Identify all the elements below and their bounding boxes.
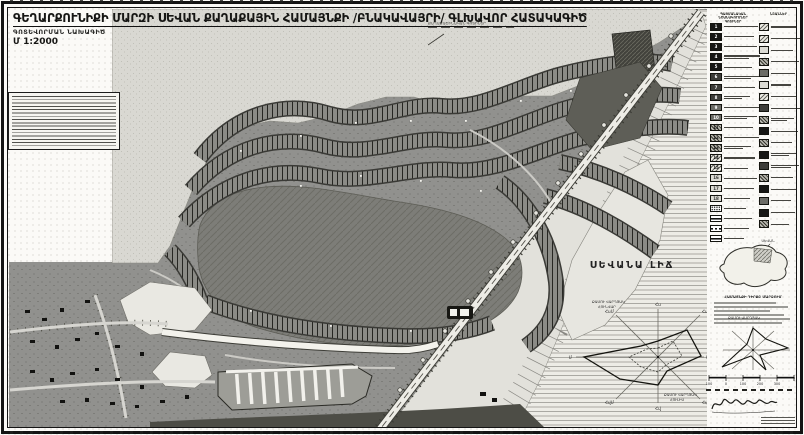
legend-item: [759, 116, 798, 124]
legend-label-lines: [724, 145, 756, 150]
legend-swatch: 2: [710, 33, 722, 41]
legend-item: [759, 93, 798, 101]
signature-scribble: [709, 392, 781, 418]
legend-swatch: [759, 139, 769, 147]
legend-label-lines: [771, 152, 798, 157]
legend-label-lines: [724, 126, 756, 129]
legend-label-lines: [724, 217, 756, 220]
legend-swatch: [759, 197, 769, 205]
legend-item: 8: [710, 94, 756, 102]
legend-item: 7: [710, 84, 756, 92]
callout-leader-line: [428, 28, 468, 46]
legend-swatch: [710, 215, 722, 223]
legend-swatch: 18: [710, 195, 722, 203]
legend-label-lines: [771, 130, 798, 133]
legend-label-lines: [724, 115, 757, 120]
zones-callout-label: ՔԱՂԱՔԱՇԻՆԱԿԱՆ ԳՈՏԻՆԵՐ: [428, 21, 486, 25]
legend-swatch: 5: [710, 63, 722, 71]
legend-label-lines: [724, 25, 758, 28]
legend-label-lines: [724, 187, 756, 190]
rose-axis-sw: ՀվՄ: [605, 400, 615, 405]
legend-swatch: 13: [710, 144, 722, 152]
legend-item: [759, 81, 798, 89]
legend-swatch: [759, 127, 769, 135]
zones-callout: ՔԱՂԱՔԱՇԻՆԱԿԱՆ ԳՈՏԻՆԵՐ: [428, 21, 548, 50]
legend-label-lines: [724, 136, 759, 139]
legend-label-lines: [771, 49, 798, 52]
legend-swatch: 6: [710, 73, 722, 81]
legend-item: 17: [710, 185, 756, 193]
legend-item: 12: [710, 134, 756, 142]
legend-left-heading: ՊԱՅՄԱՆԱԿԱՆ ՆՇԱՆԱԿՈՒՄՆԵՐԳՈՏԻՆԵՐ: [710, 12, 756, 24]
scale-num-4: 300: [774, 382, 780, 386]
legend-item: [759, 35, 798, 43]
legend-item: [759, 209, 798, 217]
legend-label-lines: [724, 35, 756, 38]
legend-swatch: [759, 69, 769, 77]
greenhouse-block: [218, 364, 372, 410]
legend-swatch: [759, 104, 769, 112]
legend-item: 11: [710, 124, 756, 132]
inset-heading: ՀԱՄԱՅՆՔԻ ԴԻՐՔԸ ՄԱՐԶՈՒՄ: [724, 294, 781, 299]
legend-col-right-items: [759, 23, 798, 228]
legend-label-lines: [771, 95, 798, 98]
separator-dashed-line: [706, 389, 797, 391]
notes-block: [8, 92, 120, 150]
legend-item: 2: [710, 33, 756, 41]
legend-swatch: [710, 205, 722, 213]
legend-swatch: [759, 220, 769, 228]
legend-item: [759, 162, 798, 170]
sevan-region-shade: [754, 248, 772, 263]
rose-small-caption: ՔԱՄՈՒ ՎԱՐԴՅԱԿ: [728, 316, 760, 320]
legend-item: 14: [710, 154, 756, 162]
legend-item: [759, 46, 798, 54]
legend-swatch: [759, 209, 769, 217]
legend-swatch: [759, 81, 769, 89]
legend-item: 15: [710, 164, 756, 172]
legend-swatch: 1: [710, 23, 722, 31]
legend-label-lines: [724, 95, 756, 100]
legend-swatch: [759, 151, 769, 159]
legend-swatch: [759, 93, 769, 101]
inset-marker-label: ՍԵՎԱՆ: [762, 239, 775, 243]
rose-axis-n: Հս: [655, 302, 661, 307]
legend-right-heading: ՆՇԱՆՆԵՐ: [759, 12, 798, 16]
legend-label-lines: [771, 72, 798, 75]
legend-label-lines: [771, 199, 798, 202]
legend-swatch: [759, 46, 769, 54]
scale-num-3: 200: [757, 382, 763, 386]
master-plan-sheet: ՍԵՎԱՆԱ ԼԻՃ Հս Հվ Մ Ա ՀսԱ Հս: [0, 0, 804, 435]
legend-label-lines: [724, 86, 756, 89]
legend-item: [710, 215, 756, 223]
road-sign-badge: [447, 306, 473, 319]
legend-swatch: 10: [710, 114, 722, 122]
corner-micro-text: [761, 417, 795, 426]
legend-item: 9: [710, 104, 756, 112]
legend-label-lines: [771, 176, 798, 179]
legend-item: [710, 225, 756, 233]
legend-swatch: 16: [710, 174, 722, 182]
legend-item: 10: [710, 114, 756, 122]
graphic-scale-bar: 100 0 100 200 300: [705, 372, 799, 387]
legend-swatch: [759, 58, 769, 66]
legend-swatch: 9: [710, 104, 722, 112]
wind-rose-small: ՔԱՄՈՒ ՎԱՐԴՅԱԿ: [706, 310, 802, 372]
armenia-outline: [720, 245, 787, 286]
legend-panel: ՊԱՅՄԱՆԱԿԱՆ ՆՇԱՆԱԿՈՒՄՆԵՐԳՈՏԻՆԵՐ 123456789…: [710, 12, 798, 238]
legend-swatch: 7: [710, 84, 722, 92]
legend-swatch: 15: [710, 164, 722, 172]
legend-col-left-items: 123456789101112131415161718: [710, 23, 756, 242]
lake-label: ՍԵՎԱՆԱ ԼԻՃ: [590, 260, 675, 271]
master-plan-map: ՍԵՎԱՆԱ ԼԻՃ Հս Հվ Մ Ա ՀսԱ Հս: [0, 0, 804, 435]
scale-num-1: 0: [725, 382, 727, 386]
legend-label-lines: [724, 156, 756, 159]
legend-swatch: [759, 174, 769, 182]
legend-item: [759, 69, 798, 77]
rose-caption-top-2: ՀՈՒՆՎԱՐ: [598, 305, 616, 309]
legend-label-lines: [724, 66, 756, 69]
legend-label-lines: [724, 106, 761, 109]
legend-swatch: [759, 23, 769, 31]
legend-item: [759, 23, 798, 31]
legend-label-lines: [724, 54, 760, 59]
legend-label-lines: [771, 223, 798, 226]
legend-label-lines: [771, 141, 798, 144]
legend-label-lines: [724, 45, 757, 48]
legend-item: [759, 139, 798, 147]
legend-label-lines: [771, 211, 798, 214]
legend-item: [759, 151, 798, 159]
legend-swatch: 8: [710, 94, 722, 102]
legend-label-lines: [771, 83, 798, 86]
legend-label-lines: [771, 188, 798, 191]
wind-rose-small-polygon: [722, 328, 788, 370]
legend-swatch: [759, 162, 769, 170]
legend-swatch: 11: [710, 124, 722, 132]
legend-label-lines: [771, 37, 801, 40]
legend-item: 13: [710, 144, 756, 152]
notes-text-lines: [12, 96, 116, 146]
legend-item: 5: [710, 63, 756, 71]
legend-item: [759, 127, 798, 135]
legend-label-lines: [771, 60, 799, 63]
rose-axis-s: Հվ: [655, 406, 661, 411]
legend-item: 16: [710, 174, 756, 182]
legend-item: 6: [710, 73, 756, 81]
legend-label-lines: [724, 75, 762, 80]
legend-item: [759, 185, 798, 193]
legend-item: [710, 205, 756, 213]
legend-swatch: 17: [710, 185, 722, 193]
legend-swatch: [759, 116, 769, 124]
legend-label-lines: [724, 177, 757, 180]
legend-label-lines: [771, 164, 799, 169]
rose-caption-br-1: ՔԱՄՈՒ ՎԱՐԴՅԱԿ: [664, 393, 697, 397]
legend-swatch: 3: [710, 43, 722, 51]
legend-item: 1: [710, 23, 756, 31]
legend-label-lines: [724, 227, 756, 230]
legend-item: [759, 104, 798, 112]
scale-num-2: 100: [740, 382, 746, 386]
frame-tick-strip-bottom: [10, 431, 794, 434]
legend-label-lines: [771, 107, 801, 110]
legend-item: [759, 197, 798, 205]
rose-caption-br-2: ՀՈՒԼԻՍ: [670, 398, 685, 402]
legend-swatch: [759, 35, 769, 43]
legend-label-lines: [724, 197, 756, 200]
legend-item: 18: [710, 195, 756, 203]
scale-num-0: 100: [706, 382, 712, 386]
legend-item: [759, 174, 798, 182]
legend-label-lines: [724, 207, 756, 210]
rose-caption-top-1: ՔԱՄՈՒ ՎԱՐԴՅԱԿ: [592, 300, 625, 304]
legend-label-lines: [724, 167, 756, 170]
legend-label-lines: [771, 25, 798, 28]
legend-item: 4: [710, 53, 756, 61]
legend-swatch: [710, 225, 722, 233]
legend-swatch: 4: [710, 53, 722, 61]
rose-axis-nw: ՀսՄ: [605, 309, 615, 314]
legend-item: 3: [710, 43, 756, 51]
legend-swatch: [759, 185, 769, 193]
legend-item: [759, 220, 798, 228]
frame-tick-strip-top: [10, 0, 794, 3]
legend-swatch: 14: [710, 154, 722, 162]
legend-item: [759, 58, 798, 66]
legend-swatch: 12: [710, 134, 722, 142]
legend-label-lines: [771, 117, 798, 122]
